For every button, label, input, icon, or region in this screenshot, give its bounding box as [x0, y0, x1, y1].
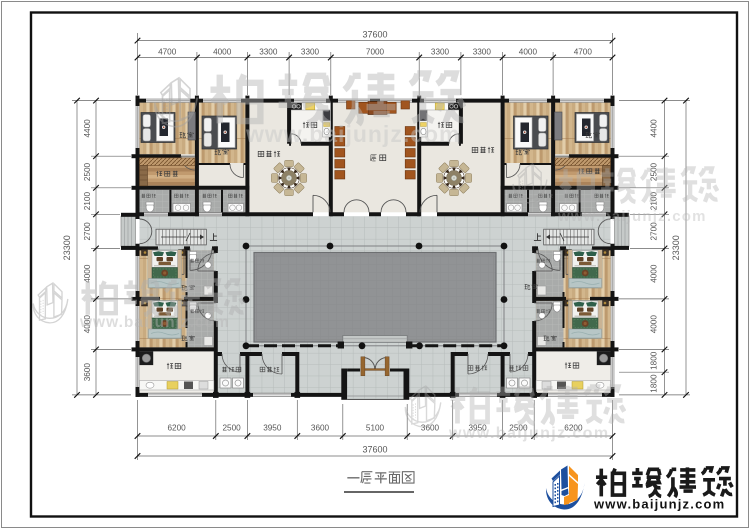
svg-text:6200: 6200 [167, 424, 186, 433]
svg-text:4400: 4400 [650, 119, 659, 138]
svg-text:3950: 3950 [263, 424, 282, 433]
svg-text:4000: 4000 [213, 48, 232, 57]
svg-text:4000: 4000 [83, 264, 92, 283]
svg-text:4700: 4700 [158, 48, 177, 57]
svg-text:www.baijunjz.com: www.baijunjz.com [448, 425, 610, 442]
svg-text:37600: 37600 [362, 445, 387, 455]
svg-text:3300: 3300 [473, 48, 492, 57]
svg-text:4000: 4000 [650, 264, 659, 283]
svg-text:3600: 3600 [311, 424, 330, 433]
svg-text:2100: 2100 [83, 192, 92, 211]
svg-text:7000: 7000 [366, 48, 385, 57]
svg-text:www.baijunjz.com: www.baijunjz.com [557, 208, 707, 225]
svg-text:3300: 3300 [431, 48, 450, 57]
svg-text:www.baijunjz.com: www.baijunjz.com [593, 497, 725, 512]
svg-text:3600: 3600 [83, 363, 92, 382]
svg-text:4000: 4000 [519, 48, 538, 57]
svg-text:4000: 4000 [650, 315, 659, 334]
svg-text:23300: 23300 [671, 235, 681, 260]
svg-text:5100: 5100 [366, 424, 385, 433]
svg-text:4400: 4400 [83, 119, 92, 138]
svg-text:37600: 37600 [362, 30, 387, 40]
svg-text:23300: 23300 [62, 235, 72, 260]
svg-text:1800: 1800 [650, 374, 659, 393]
svg-text:1800: 1800 [650, 351, 659, 370]
svg-text:2500: 2500 [222, 424, 241, 433]
svg-text:3300: 3300 [301, 48, 320, 57]
svg-text:2500: 2500 [83, 162, 92, 181]
svg-text:4700: 4700 [574, 48, 593, 57]
svg-text:2700: 2700 [83, 222, 92, 241]
svg-text:3300: 3300 [259, 48, 278, 57]
svg-text:www.baijunjz.com: www.baijunjz.com [245, 121, 461, 147]
svg-text:www.baijunjz.com: www.baijunjz.com [79, 314, 230, 331]
